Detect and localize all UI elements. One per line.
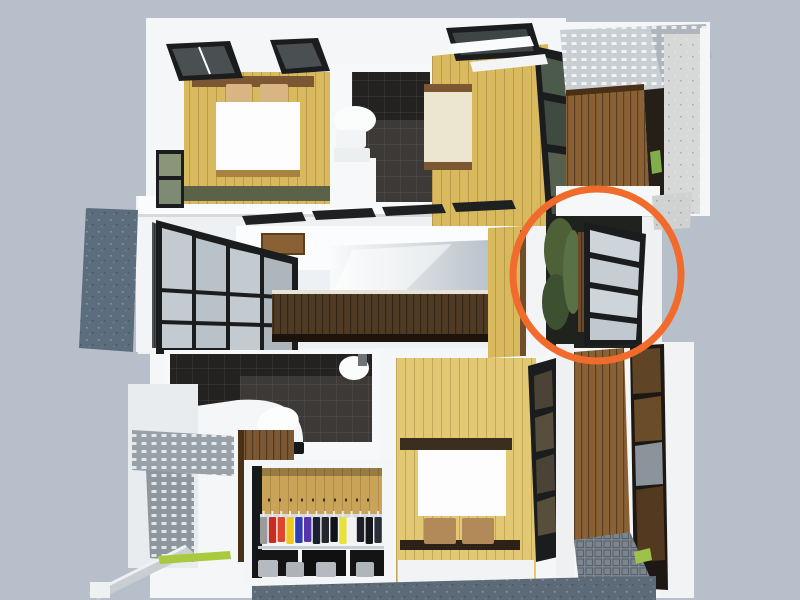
entry-corridor xyxy=(556,344,668,596)
bedroom3-pillow-right xyxy=(462,518,494,544)
side-window-pane-bottom xyxy=(159,180,181,204)
bedroom3-window-pane-2 xyxy=(535,412,554,452)
clothes-hanger xyxy=(307,511,309,517)
counter-bottom-shadow xyxy=(272,334,490,342)
clothing-item xyxy=(304,517,311,542)
bedroom1-green-strip xyxy=(184,186,332,201)
clothing-item xyxy=(339,517,346,544)
right-concrete-wall-texture xyxy=(664,34,702,214)
bedroom1-bed-duvet xyxy=(216,102,300,172)
toilet-top-bowl xyxy=(334,106,376,134)
bathroom-top-vanity xyxy=(334,148,370,162)
clothing-item xyxy=(322,517,329,543)
toilet-top-tank xyxy=(336,130,366,148)
clothes-hanger xyxy=(280,511,282,517)
clothes-hanger xyxy=(263,511,265,517)
clothes-hanger xyxy=(298,511,300,517)
clothing-item xyxy=(348,517,355,543)
clothing-item xyxy=(313,517,320,544)
clothing-item xyxy=(295,517,302,543)
clothing-item xyxy=(330,517,337,542)
bedroom3-foot-strip xyxy=(400,540,520,550)
clothing-item xyxy=(269,517,276,543)
clothes-hanger xyxy=(271,511,273,517)
storage-box-1 xyxy=(258,560,278,577)
bedroom1-bed-foot-trim xyxy=(216,170,300,177)
hall-wood-trim xyxy=(520,230,526,356)
storage-box-4 xyxy=(356,562,374,577)
floorplan-render xyxy=(0,0,800,600)
walk-in-closet xyxy=(244,460,394,584)
corridor-concrete-patch xyxy=(635,442,663,486)
clothing-item xyxy=(260,517,267,544)
corridor-left-wall xyxy=(556,344,574,596)
clothing-item xyxy=(366,517,373,544)
bedroom1-pillow-right xyxy=(260,84,288,103)
bedroom1-pillow-left xyxy=(226,84,252,103)
counter-top-edge xyxy=(272,290,490,294)
bedroom3-window-pane-1 xyxy=(534,370,553,410)
bedroom3-pillow-left xyxy=(424,518,456,544)
side-window-pane-top xyxy=(159,154,181,176)
left-concrete-pillar xyxy=(79,208,138,352)
bedroom3-bed-duvet xyxy=(418,450,506,516)
balcony-canopy-slats xyxy=(560,26,666,96)
clothes-hanger xyxy=(359,511,361,517)
clothes-hanger xyxy=(351,511,353,517)
clothes-hanger xyxy=(377,511,379,517)
corridor-deck-planks xyxy=(574,348,630,540)
clothes-hanger xyxy=(315,511,317,517)
balcony-plant xyxy=(650,150,662,174)
basin-tag xyxy=(358,354,367,366)
clothing-item xyxy=(278,517,285,542)
clothing-item xyxy=(286,517,293,544)
garden-white-block xyxy=(90,582,110,598)
bathroom-top xyxy=(330,64,434,208)
bedroom3-window-pane-3 xyxy=(536,454,555,494)
clothes-hanger xyxy=(289,511,291,517)
bathroom-top-tile-patch-grid xyxy=(376,158,432,202)
corridor-panel-2 xyxy=(634,396,662,442)
storage-box-3 xyxy=(316,562,336,577)
glass-partition-pane-3 xyxy=(230,248,260,350)
closet-lower-rail xyxy=(258,546,384,549)
clothing-item xyxy=(357,517,364,542)
bedroom2-bed-foot-trim xyxy=(424,162,472,170)
bedroom3-head-trim xyxy=(400,438,512,450)
bedroom2-bed-duvet xyxy=(424,92,472,162)
skylight-window-left-pane xyxy=(172,46,235,76)
bedroom-bottom xyxy=(396,358,562,586)
right-outer-wall xyxy=(700,28,710,216)
bedroom3-window-pane-4 xyxy=(537,496,556,536)
glass-partition-pane-1 xyxy=(162,228,192,348)
storage-box-2 xyxy=(286,562,304,577)
closet-wall-shade xyxy=(262,468,382,476)
wooden-door-edge xyxy=(238,430,244,562)
clothing-item xyxy=(374,517,381,543)
clothes-hanger xyxy=(368,511,370,517)
clothes-hanger xyxy=(333,511,335,517)
clothes-hanger xyxy=(324,511,326,517)
bedroom2-bed-head-trim xyxy=(424,84,472,92)
clothes-hanger xyxy=(342,511,344,517)
perforated-arm-holes xyxy=(132,430,234,476)
